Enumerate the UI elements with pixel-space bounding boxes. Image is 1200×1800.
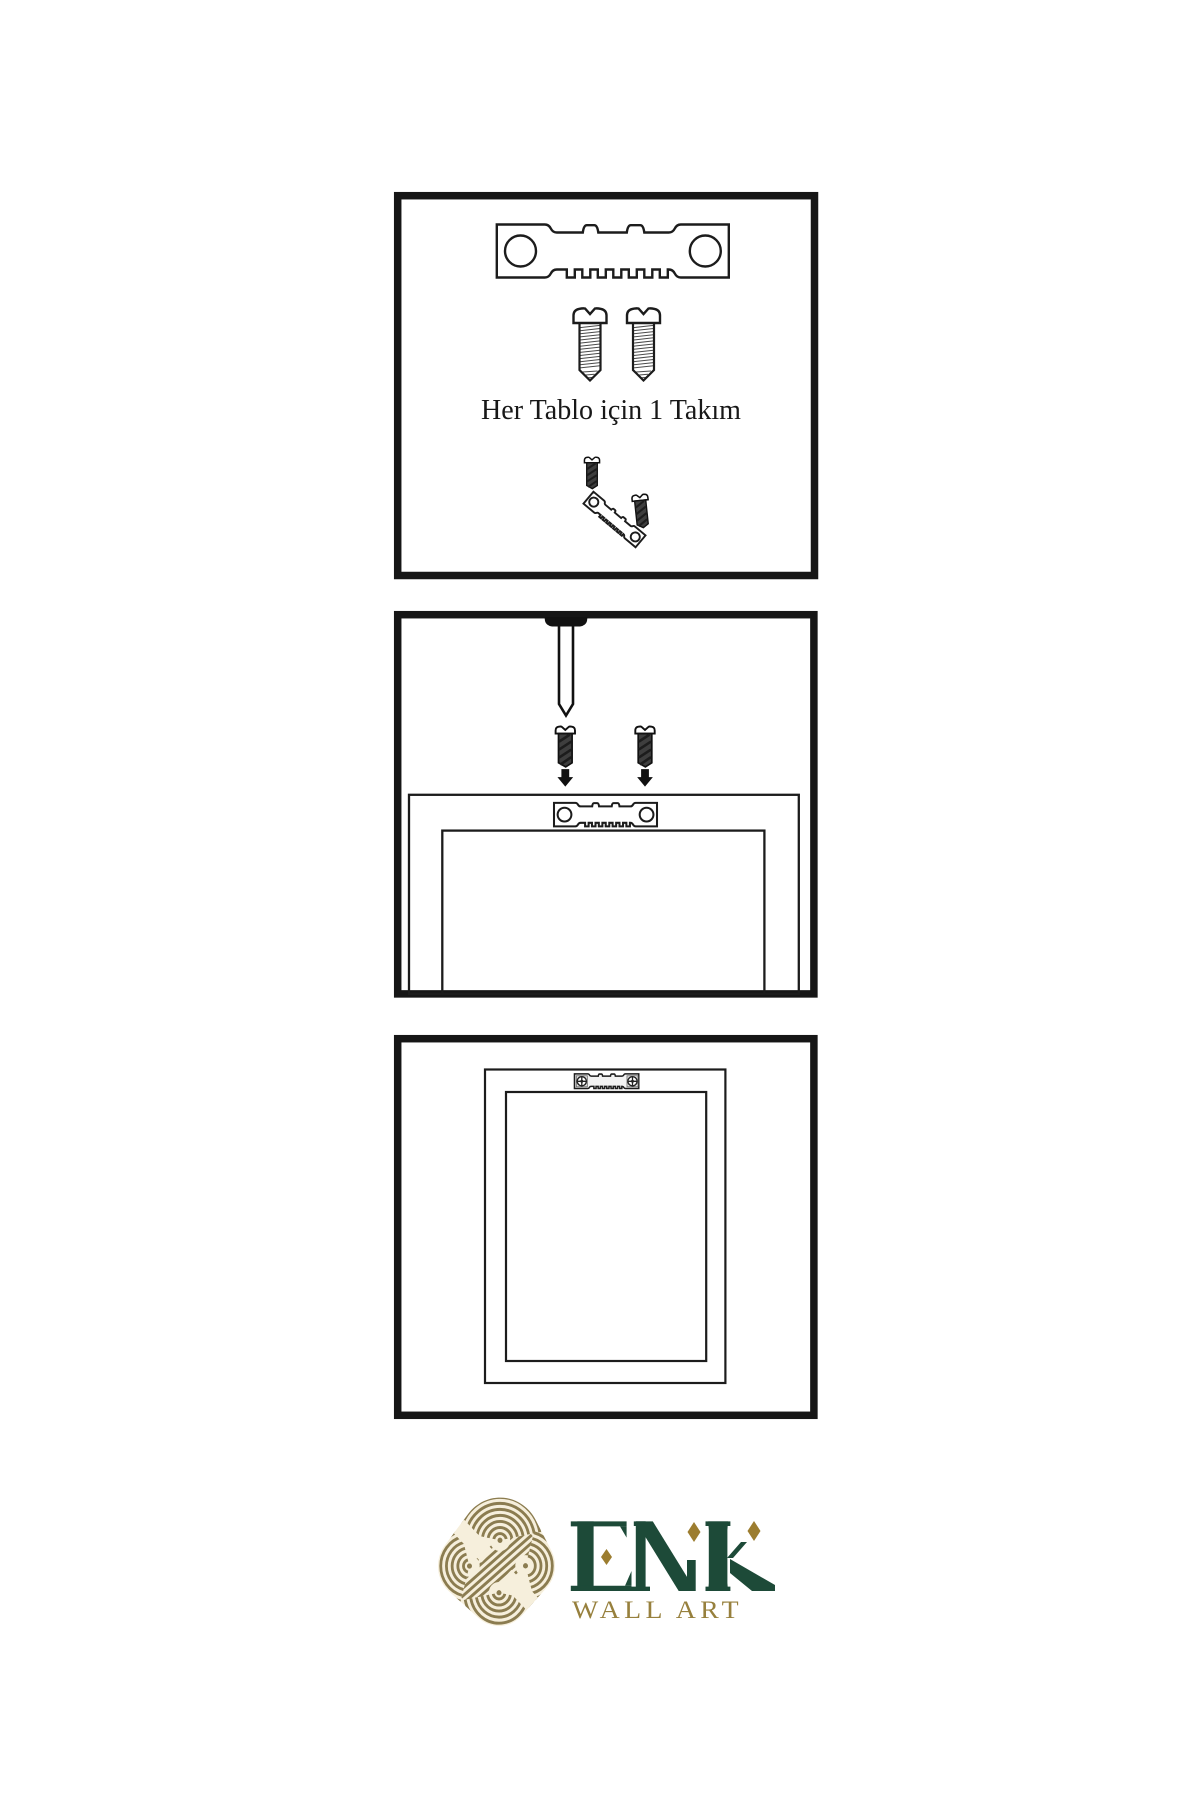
svg-text:Her Tablo için 1 Takım: Her Tablo için 1 Takım: [481, 394, 741, 426]
svg-text:WALL ART: WALL ART: [572, 1597, 743, 1624]
